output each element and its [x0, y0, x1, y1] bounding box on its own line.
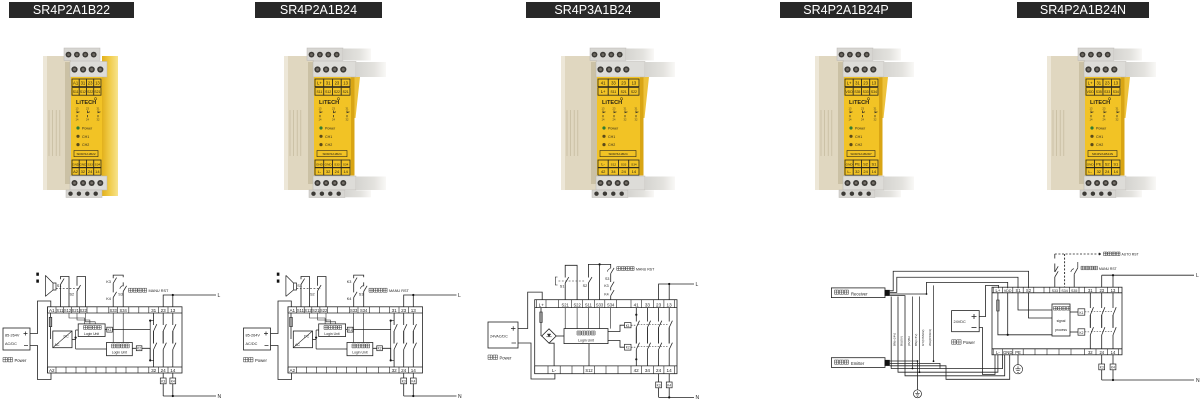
svg-text:A1: A1	[289, 308, 295, 313]
svg-text:K3: K3	[347, 280, 352, 284]
svg-text:VDD: VDD	[846, 90, 854, 94]
svg-text:AUTO RST: AUTO RST	[1122, 253, 1139, 257]
svg-text:L+: L+	[539, 303, 545, 308]
svg-text:S3: S3	[118, 293, 123, 297]
svg-text:LiTECH: LiTECH	[1090, 100, 1110, 106]
svg-text:S21: S21	[621, 90, 627, 94]
svg-text:S2: S2	[310, 293, 315, 297]
svg-text:AC: AC	[55, 343, 60, 347]
svg-text:GY(OSSD2): GY(OSSD2)	[921, 329, 925, 346]
svg-text:S35: S35	[1071, 289, 1077, 293]
svg-text:14: 14	[170, 368, 176, 373]
svg-text:31: 31	[392, 308, 398, 313]
svg-text:L: L	[1196, 273, 1199, 279]
svg-text:24: 24	[161, 368, 167, 373]
svg-text:S33: S33	[1052, 289, 1058, 293]
svg-text:PE: PE	[1015, 350, 1021, 355]
svg-text:23: 23	[1099, 288, 1104, 293]
svg-text:S34: S34	[631, 162, 637, 166]
svg-text:K2: K2	[378, 347, 382, 351]
svg-text:S2: S2	[583, 284, 588, 288]
svg-text:LiTECH: LiTECH	[602, 100, 622, 106]
svg-text:S33: S33	[863, 90, 869, 94]
svg-text:MANU RST: MANU RST	[1099, 267, 1117, 271]
svg-text:31: 31	[326, 81, 331, 86]
svg-text:S22: S22	[87, 90, 93, 94]
svg-text:S11: S11	[317, 90, 323, 94]
svg-text:N: N	[1196, 378, 1200, 384]
svg-text:24: 24	[335, 169, 340, 174]
svg-text:S11: S11	[73, 90, 79, 94]
svg-text:24: 24	[1099, 350, 1104, 355]
svg-text:13: 13	[872, 81, 877, 86]
svg-text:Login Unit: Login Unit	[352, 351, 367, 355]
svg-text:K3: K3	[402, 380, 406, 384]
svg-text:CH2: CH2	[325, 143, 332, 147]
svg-text:Login Unit: Login Unit	[112, 351, 127, 355]
svg-text:L: L	[458, 293, 461, 299]
svg-text:34: 34	[611, 169, 616, 174]
svg-text:S1: S1	[1015, 288, 1021, 293]
svg-text:L: L	[218, 293, 221, 299]
svg-text:LiTECH: LiTECH	[319, 100, 339, 106]
svg-text:L+: L+	[317, 81, 322, 86]
svg-text:14: 14	[343, 169, 348, 174]
svg-text:24: 24	[656, 368, 662, 373]
svg-text:S1: S1	[560, 285, 565, 289]
svg-text:L+: L+	[996, 288, 1001, 293]
svg-text:K4: K4	[347, 297, 352, 301]
svg-text:VDD: VDD	[1087, 90, 1095, 94]
svg-text:S34: S34	[871, 90, 877, 94]
svg-text:14: 14	[632, 169, 637, 174]
svg-text:L-: L-	[996, 350, 1000, 355]
svg-text:K1: K1	[626, 324, 630, 328]
svg-text:Power: Power	[15, 358, 27, 363]
svg-text:N: N	[218, 394, 222, 400]
svg-text:S22: S22	[631, 90, 637, 94]
svg-text:41: 41	[634, 303, 640, 308]
svg-text:L+: L+	[601, 89, 606, 94]
svg-text:S22: S22	[80, 308, 88, 313]
svg-text:23: 23	[161, 308, 167, 313]
svg-text:AC: AC	[295, 343, 300, 347]
svg-text:A1: A1	[49, 308, 55, 313]
svg-text:S34: S34	[607, 303, 615, 308]
svg-text:13: 13	[632, 81, 637, 86]
svg-text:S22: S22	[334, 90, 340, 94]
svg-text:K3: K3	[161, 380, 165, 384]
svg-text:S12: S12	[585, 368, 593, 373]
svg-text:PE: PE	[1096, 161, 1102, 166]
svg-text:L+: L+	[847, 81, 852, 86]
svg-text:S21: S21	[72, 308, 80, 313]
svg-text:CH1: CH1	[325, 135, 332, 139]
svg-text:S12: S12	[611, 162, 617, 166]
svg-text:SR4P2A1B24P: SR4P2A1B24P	[850, 152, 871, 156]
svg-text:85-264V: 85-264V	[5, 334, 20, 338]
svg-text:L-: L-	[552, 368, 557, 373]
svg-text:A2: A2	[289, 368, 295, 373]
svg-text:K3: K3	[1100, 366, 1104, 370]
svg-text:S3: S3	[359, 293, 364, 297]
svg-text:K4: K4	[411, 380, 415, 384]
svg-text:VDD: VDD	[1004, 289, 1012, 293]
svg-text:MANU RST: MANU RST	[389, 289, 410, 293]
svg-text:CH2: CH2	[855, 143, 862, 147]
svg-text:32: 32	[81, 169, 86, 174]
svg-text:S33: S33	[1104, 90, 1110, 94]
svg-text:S33: S33	[621, 162, 627, 166]
svg-text:MANU RST: MANU RST	[636, 268, 655, 272]
svg-text:Power: Power	[963, 340, 975, 345]
svg-text:S33: S33	[334, 162, 340, 166]
svg-text:S12: S12	[80, 90, 86, 94]
svg-text:S22: S22	[573, 303, 581, 308]
svg-text:Power: Power	[608, 127, 619, 131]
svg-text:SR4P3A1B24: SR4P3A1B24	[608, 152, 627, 156]
svg-text:SR4P2A1B24N: SR4P2A1B24N	[1092, 152, 1113, 156]
svg-text:33: 33	[611, 81, 616, 86]
svg-text:CH2: CH2	[82, 143, 89, 147]
svg-text:Login Unit: Login Unit	[84, 332, 99, 336]
svg-text:41: 41	[601, 81, 606, 86]
svg-text:S33: S33	[110, 308, 118, 313]
svg-text:S22: S22	[320, 308, 328, 313]
svg-text:DC: DC	[64, 335, 70, 339]
svg-text:WH(OSSD1): WH(OSSD1)	[928, 329, 932, 346]
svg-text:31: 31	[1096, 81, 1101, 86]
svg-text:23: 23	[1105, 81, 1110, 86]
svg-text:14: 14	[411, 368, 417, 373]
svg-text:23: 23	[863, 81, 868, 86]
svg-text:S34: S34	[120, 308, 128, 313]
svg-text:13: 13	[1113, 81, 1118, 86]
svg-text:MANU RST: MANU RST	[149, 289, 170, 293]
svg-text:32: 32	[392, 368, 398, 373]
svg-text:Power: Power	[82, 127, 93, 131]
svg-text:GND: GND	[1087, 162, 1095, 166]
svg-text:Receiver: Receiver	[851, 291, 868, 296]
svg-text:13: 13	[1111, 288, 1116, 293]
svg-text:S1: S1	[871, 161, 877, 166]
svg-text:S34: S34	[343, 162, 349, 166]
svg-text:32: 32	[855, 169, 860, 174]
svg-text:31: 31	[81, 81, 86, 86]
svg-text:K4: K4	[604, 292, 608, 296]
svg-text:32: 32	[1097, 169, 1102, 174]
svg-text:13: 13	[667, 303, 673, 308]
svg-text:AC/DC: AC/DC	[246, 342, 258, 346]
svg-text:S35: S35	[1096, 90, 1102, 94]
svg-text:K3: K3	[106, 280, 111, 284]
svg-text:33: 33	[645, 303, 651, 308]
svg-text:S33: S33	[350, 308, 358, 313]
svg-text:S34: S34	[95, 162, 101, 166]
svg-text:AC/DC: AC/DC	[5, 342, 17, 346]
svg-text:BN(1.5V): BN(1.5V)	[914, 334, 918, 346]
svg-text:S11: S11	[585, 303, 593, 308]
svg-text:CH2: CH2	[1096, 143, 1103, 147]
svg-text:S21: S21	[312, 308, 320, 313]
svg-text:S34: S34	[1113, 90, 1119, 94]
svg-text:K2: K2	[1079, 331, 1083, 335]
svg-text:14: 14	[1114, 169, 1119, 174]
svg-text:A2: A2	[73, 169, 79, 174]
svg-text:S34: S34	[1061, 289, 1067, 293]
svg-text:Emitter: Emitter	[851, 361, 865, 366]
svg-text:GND: GND	[325, 162, 333, 166]
svg-text:S21: S21	[94, 90, 100, 94]
svg-text:GND: GND	[846, 162, 854, 166]
svg-text:32: 32	[326, 169, 331, 174]
svg-text:13: 13	[411, 308, 417, 313]
svg-text:Power: Power	[1096, 127, 1107, 131]
svg-text:S1: S1	[1113, 161, 1119, 166]
svg-text:K4: K4	[667, 384, 671, 388]
svg-text:SR4P2A1B24: SR4P2A1B24	[322, 152, 341, 156]
svg-text:S21: S21	[343, 90, 349, 94]
svg-text:A1: A1	[73, 81, 79, 86]
svg-text:K4: K4	[1111, 366, 1115, 370]
svg-text:S12: S12	[325, 90, 331, 94]
svg-text:32: 32	[151, 368, 157, 373]
svg-text:S2: S2	[1026, 288, 1032, 293]
svg-text:K2: K2	[137, 347, 141, 351]
svg-text:CH1: CH1	[82, 135, 89, 139]
svg-text:34: 34	[645, 368, 651, 373]
svg-text:K2: K2	[626, 346, 630, 350]
svg-text:Power: Power	[255, 358, 267, 363]
svg-text:23: 23	[656, 303, 662, 308]
svg-text:S2: S2	[863, 161, 869, 166]
svg-text:23: 23	[401, 308, 407, 313]
svg-text:CH1: CH1	[608, 135, 615, 139]
svg-text:23: 23	[621, 81, 626, 86]
svg-text:S3: S3	[605, 277, 609, 281]
svg-text:L: L	[696, 282, 699, 288]
svg-text:32: 32	[1088, 350, 1093, 355]
svg-text:42: 42	[634, 368, 640, 373]
svg-text:31: 31	[151, 308, 157, 313]
svg-text:24: 24	[88, 169, 93, 174]
svg-text:24VAC/DC: 24VAC/DC	[490, 334, 508, 338]
svg-text:24: 24	[863, 169, 868, 174]
svg-text:14: 14	[667, 368, 673, 373]
svg-text:Power: Power	[325, 127, 336, 131]
svg-text:24: 24	[621, 169, 626, 174]
svg-text:K1: K1	[108, 328, 112, 332]
svg-text:S2: S2	[1105, 161, 1111, 166]
svg-text:K3: K3	[604, 284, 608, 288]
svg-text:K3: K3	[657, 384, 661, 388]
svg-text:S35: S35	[854, 90, 860, 94]
svg-text:K1: K1	[1079, 311, 1083, 315]
svg-text:GND: GND	[316, 162, 324, 166]
svg-text:Login Unit: Login Unit	[578, 339, 594, 343]
svg-text:14: 14	[95, 169, 100, 174]
svg-text:N: N	[696, 395, 700, 400]
svg-text:Power: Power	[500, 355, 512, 360]
svg-text:13: 13	[95, 81, 100, 86]
svg-text:24: 24	[401, 368, 407, 373]
svg-text:GND: GND	[1003, 350, 1012, 355]
svg-text:DC: DC	[304, 335, 310, 339]
svg-text:LiTECH: LiTECH	[76, 100, 96, 106]
svg-text:BU(0V): BU(0V)	[900, 336, 904, 346]
svg-text:13: 13	[170, 308, 176, 313]
svg-text:SR4P2A1B22: SR4P2A1B22	[76, 152, 95, 156]
svg-text:S33: S33	[596, 303, 604, 308]
svg-text:Power: Power	[855, 127, 866, 131]
svg-text:K4: K4	[106, 297, 111, 301]
svg-text:14: 14	[872, 169, 877, 174]
svg-text:K4: K4	[171, 380, 175, 384]
svg-text:13: 13	[343, 81, 348, 86]
svg-text:85-264V: 85-264V	[246, 334, 261, 338]
svg-text:42: 42	[601, 169, 606, 174]
svg-text:BN(+24V): BN(+24V)	[893, 333, 897, 346]
svg-text:process: process	[1055, 328, 1067, 332]
svg-text:(0V)BU: (0V)BU	[907, 336, 911, 346]
svg-text:PE: PE	[855, 161, 861, 166]
svg-text:CH2: CH2	[608, 143, 615, 147]
svg-text:S2: S2	[70, 293, 75, 297]
svg-text:31: 31	[855, 81, 860, 86]
svg-text:S34: S34	[360, 308, 368, 313]
svg-text:N: N	[458, 394, 462, 400]
svg-text:signal: signal	[1057, 319, 1066, 323]
svg-text:L+: L+	[1088, 81, 1093, 86]
svg-text:A2: A2	[49, 368, 55, 373]
svg-text:CH1: CH1	[855, 135, 862, 139]
svg-text:24: 24	[1105, 169, 1110, 174]
svg-text:S11: S11	[611, 90, 617, 94]
svg-text:CH1: CH1	[1096, 135, 1103, 139]
svg-text:K1: K1	[348, 328, 352, 332]
svg-text:LiTECH: LiTECH	[849, 100, 869, 106]
svg-text:23: 23	[88, 81, 93, 86]
svg-text:GND: GND	[79, 162, 87, 166]
svg-text:31: 31	[1088, 288, 1093, 293]
svg-text:24VDC: 24VDC	[954, 320, 966, 324]
svg-text:Login Unit: Login Unit	[324, 332, 339, 336]
svg-text:14: 14	[1111, 350, 1116, 355]
svg-text:S21: S21	[562, 303, 570, 308]
svg-text:23: 23	[335, 81, 340, 86]
svg-text:S33: S33	[87, 162, 93, 166]
